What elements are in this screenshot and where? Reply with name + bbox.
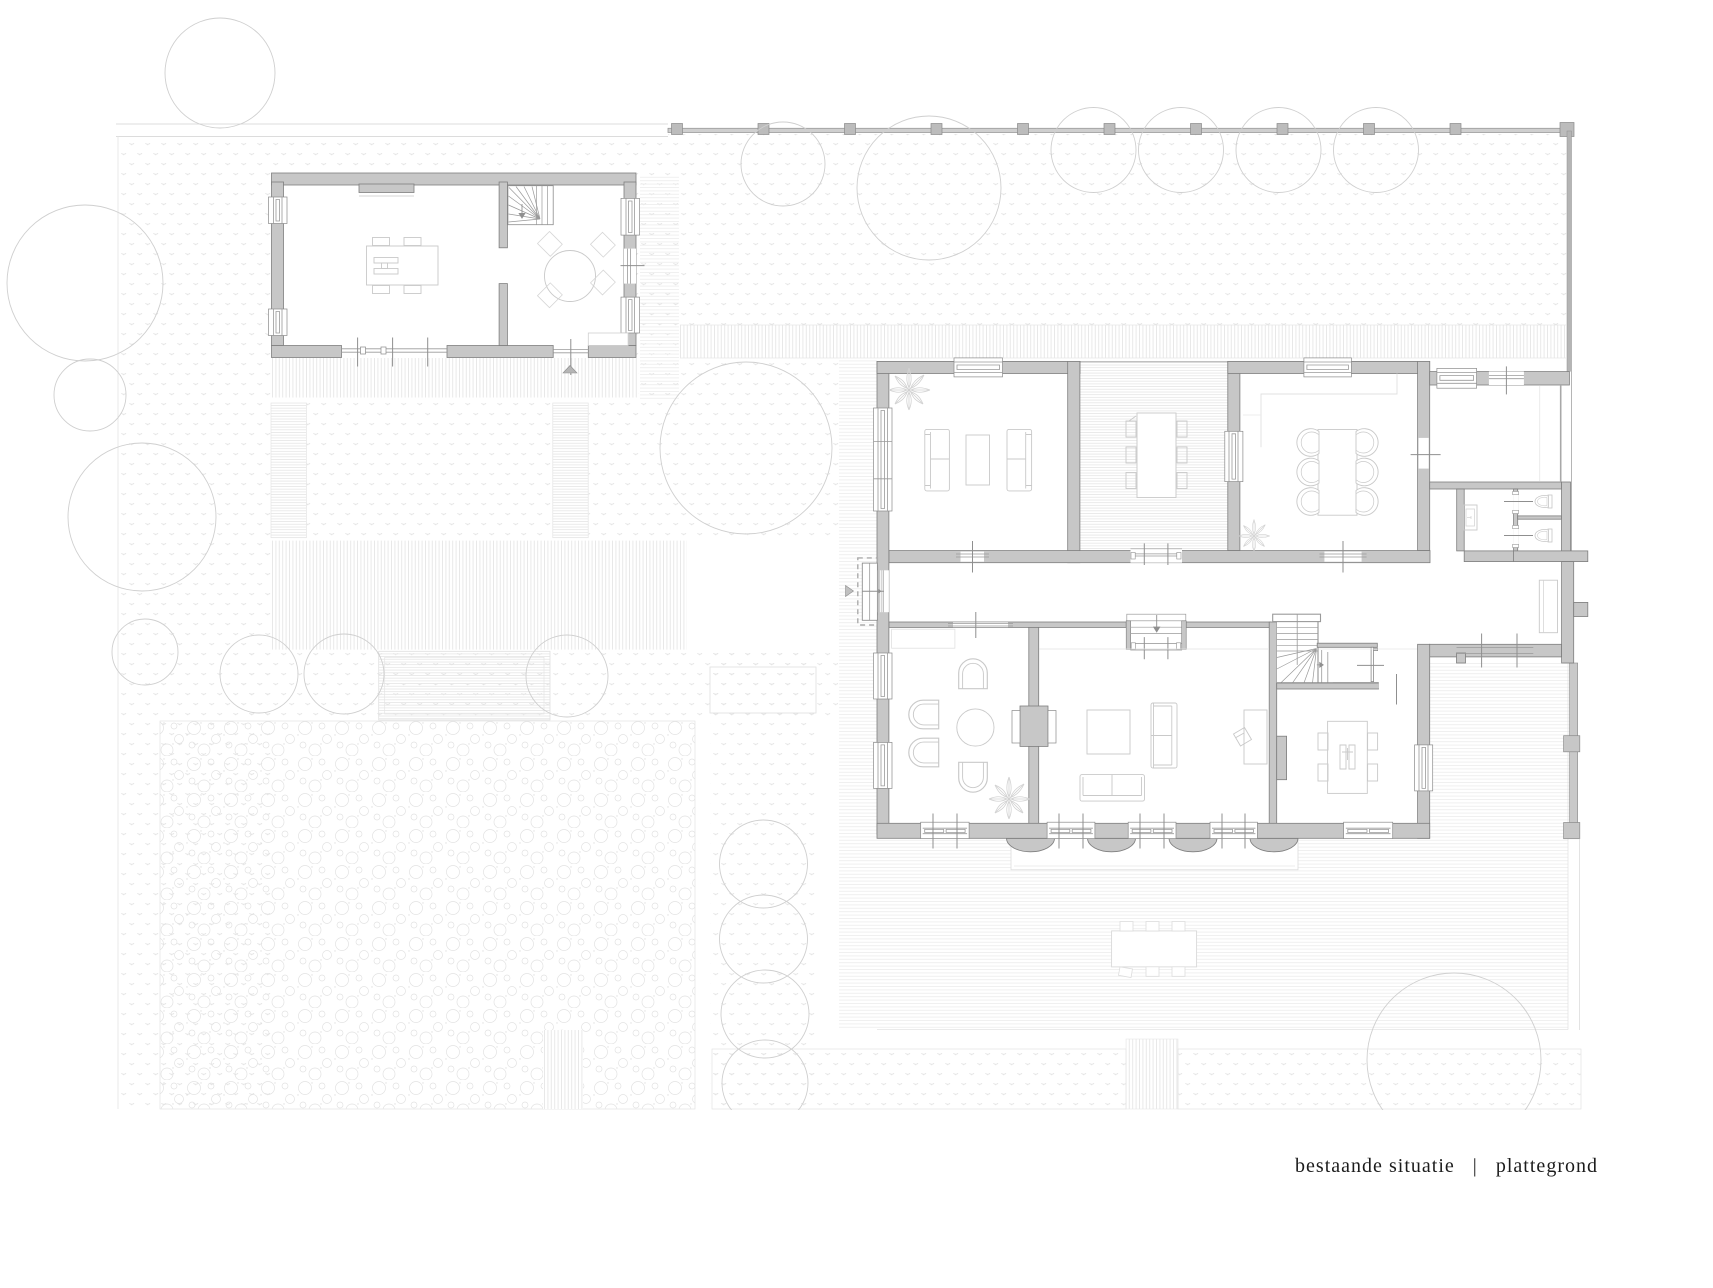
svg-text:bestaande situatie | platt: bestaande situatie | plattegrond — [1295, 1155, 1597, 1177]
